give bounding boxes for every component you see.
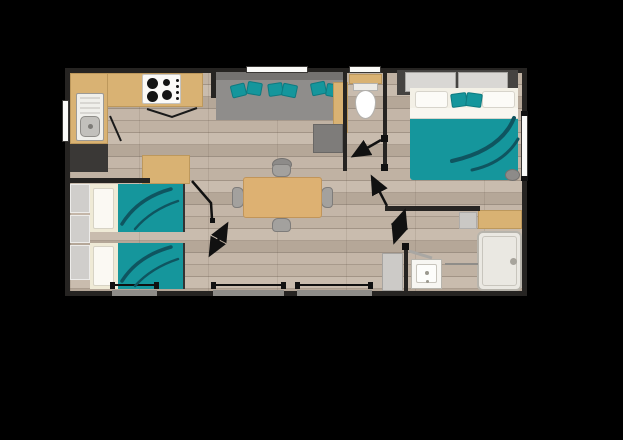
plan-annotations-overlay [0,0,623,440]
duvet-swoosh [135,201,178,229]
door-swing-arrow-entrance [211,226,226,253]
door-swing-arrow-master [373,179,387,206]
counter-edge-mark [147,108,197,117]
duvet-swoosh [135,259,178,286]
floor-plan-canvas [0,0,623,440]
door-swing-arrow-bathroom [395,213,404,240]
door-swing-arrow-wc [355,140,381,155]
door-leaf-twin-bedroom [192,181,212,219]
sink-cupboard-mark [110,116,121,141]
towel [409,251,432,258]
